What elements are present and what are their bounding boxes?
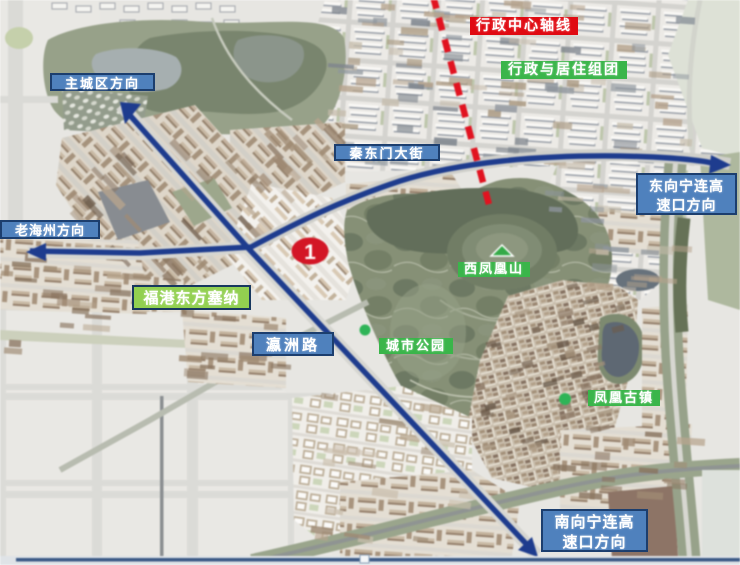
svg-text:1: 1 xyxy=(304,241,316,264)
